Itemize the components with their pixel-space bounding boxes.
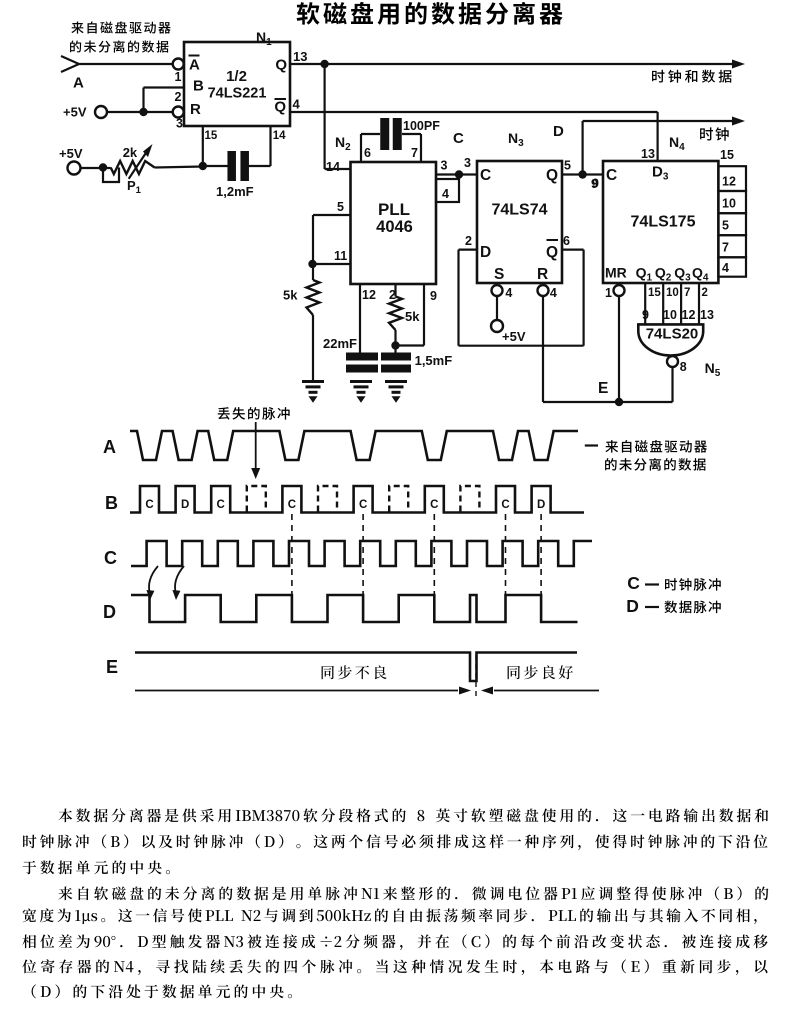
- svg-text:+5V: +5V: [59, 146, 83, 161]
- svg-text:N4: N4: [669, 134, 685, 153]
- svg-text:C: C: [627, 573, 640, 593]
- svg-text:Q: Q: [275, 57, 287, 74]
- svg-text:10: 10: [663, 308, 677, 322]
- svg-text:7: 7: [722, 241, 729, 255]
- svg-text:2k: 2k: [123, 145, 138, 160]
- svg-text:R: R: [190, 101, 201, 118]
- svg-text:9: 9: [430, 289, 437, 303]
- svg-text:4: 4: [722, 261, 729, 275]
- svg-text:2: 2: [465, 234, 472, 248]
- svg-text:12: 12: [682, 308, 696, 322]
- svg-text:N1: N1: [256, 29, 272, 48]
- svg-text:Q: Q: [274, 99, 286, 116]
- svg-text:E: E: [598, 380, 608, 397]
- svg-text:5k: 5k: [405, 309, 420, 324]
- svg-text:5: 5: [722, 219, 729, 233]
- svg-text:2: 2: [702, 287, 708, 299]
- svg-text:Q3: Q3: [674, 265, 691, 284]
- svg-text:C: C: [145, 499, 153, 511]
- svg-text:B: B: [193, 78, 204, 95]
- svg-text:B: B: [105, 493, 118, 513]
- svg-text:7: 7: [411, 146, 418, 160]
- svg-text:3: 3: [441, 159, 448, 173]
- svg-text:P1: P1: [127, 178, 142, 196]
- svg-text:5: 5: [337, 200, 344, 214]
- svg-text:D: D: [181, 499, 189, 511]
- svg-text:74LS175: 74LS175: [631, 214, 696, 231]
- svg-text:9: 9: [591, 177, 598, 191]
- svg-text:100PF: 100PF: [403, 119, 440, 133]
- svg-text:Q: Q: [546, 244, 558, 261]
- svg-text:1/2: 1/2: [226, 68, 247, 85]
- svg-text:4: 4: [505, 286, 512, 300]
- svg-text:1,2mF: 1,2mF: [216, 184, 254, 199]
- svg-text:15: 15: [648, 287, 661, 299]
- svg-text:13: 13: [641, 147, 655, 161]
- svg-text:74LS74: 74LS74: [491, 202, 547, 219]
- svg-text:D: D: [103, 602, 116, 622]
- svg-text:22mF: 22mF: [323, 336, 357, 351]
- svg-text:4046: 4046: [376, 218, 413, 236]
- svg-text:2: 2: [175, 90, 182, 104]
- svg-text:A: A: [103, 437, 116, 457]
- svg-text:7: 7: [684, 287, 690, 299]
- svg-text:N5: N5: [705, 360, 721, 379]
- svg-text:11: 11: [334, 249, 347, 263]
- svg-text:C: C: [453, 130, 464, 147]
- svg-text:4: 4: [293, 97, 301, 112]
- svg-text:C: C: [359, 499, 367, 511]
- svg-text:3: 3: [464, 156, 471, 170]
- svg-text:15: 15: [720, 148, 734, 162]
- svg-text:14: 14: [326, 160, 340, 174]
- svg-text:13: 13: [700, 308, 714, 322]
- svg-text:N3: N3: [508, 130, 524, 149]
- svg-text:MR: MR: [605, 265, 627, 281]
- svg-text:C: C: [480, 167, 491, 184]
- svg-text:N2: N2: [335, 134, 351, 153]
- svg-text:C: C: [430, 499, 438, 511]
- svg-text:+5V: +5V: [502, 329, 526, 344]
- svg-text:R: R: [537, 266, 548, 283]
- svg-text:D: D: [626, 596, 639, 616]
- svg-text:A: A: [189, 57, 200, 74]
- svg-text:D: D: [480, 244, 491, 261]
- svg-text:10: 10: [722, 197, 736, 211]
- svg-text:74LS20: 74LS20: [646, 326, 699, 343]
- svg-text:14: 14: [273, 130, 286, 142]
- svg-text:10: 10: [666, 287, 679, 299]
- svg-text:Q4: Q4: [692, 265, 709, 284]
- svg-text:4: 4: [442, 187, 449, 201]
- svg-text:8: 8: [680, 360, 687, 374]
- svg-text:1,5mF: 1,5mF: [415, 353, 453, 368]
- svg-text:4: 4: [550, 286, 557, 300]
- svg-text:1: 1: [175, 70, 182, 84]
- svg-text:E: E: [106, 657, 118, 677]
- svg-text:C: C: [606, 167, 617, 184]
- svg-text:D: D: [537, 499, 545, 511]
- svg-text:PLL: PLL: [378, 200, 410, 219]
- svg-text:C: C: [501, 499, 509, 511]
- svg-text:S: S: [494, 266, 504, 283]
- svg-text:Q1: Q1: [636, 265, 653, 284]
- svg-text:5: 5: [564, 159, 571, 173]
- svg-text:Q: Q: [546, 167, 558, 184]
- svg-text:12: 12: [722, 175, 736, 189]
- svg-text:13: 13: [293, 49, 307, 64]
- svg-text:Q2: Q2: [655, 265, 672, 284]
- svg-text:15: 15: [205, 130, 218, 142]
- svg-text:6: 6: [563, 234, 570, 248]
- svg-text:D: D: [553, 123, 564, 140]
- svg-text:1: 1: [605, 286, 612, 300]
- svg-text:+5V: +5V: [63, 105, 87, 120]
- svg-text:A: A: [73, 75, 84, 92]
- svg-text:6: 6: [364, 146, 371, 160]
- svg-text:74LS221: 74LS221: [208, 86, 267, 102]
- svg-text:12: 12: [362, 288, 376, 302]
- svg-text:9: 9: [642, 308, 649, 322]
- svg-text:D3: D3: [652, 164, 669, 183]
- svg-text:C: C: [104, 548, 117, 568]
- svg-text:5k: 5k: [283, 288, 298, 303]
- svg-text:C: C: [217, 499, 225, 511]
- svg-text:C: C: [288, 499, 296, 511]
